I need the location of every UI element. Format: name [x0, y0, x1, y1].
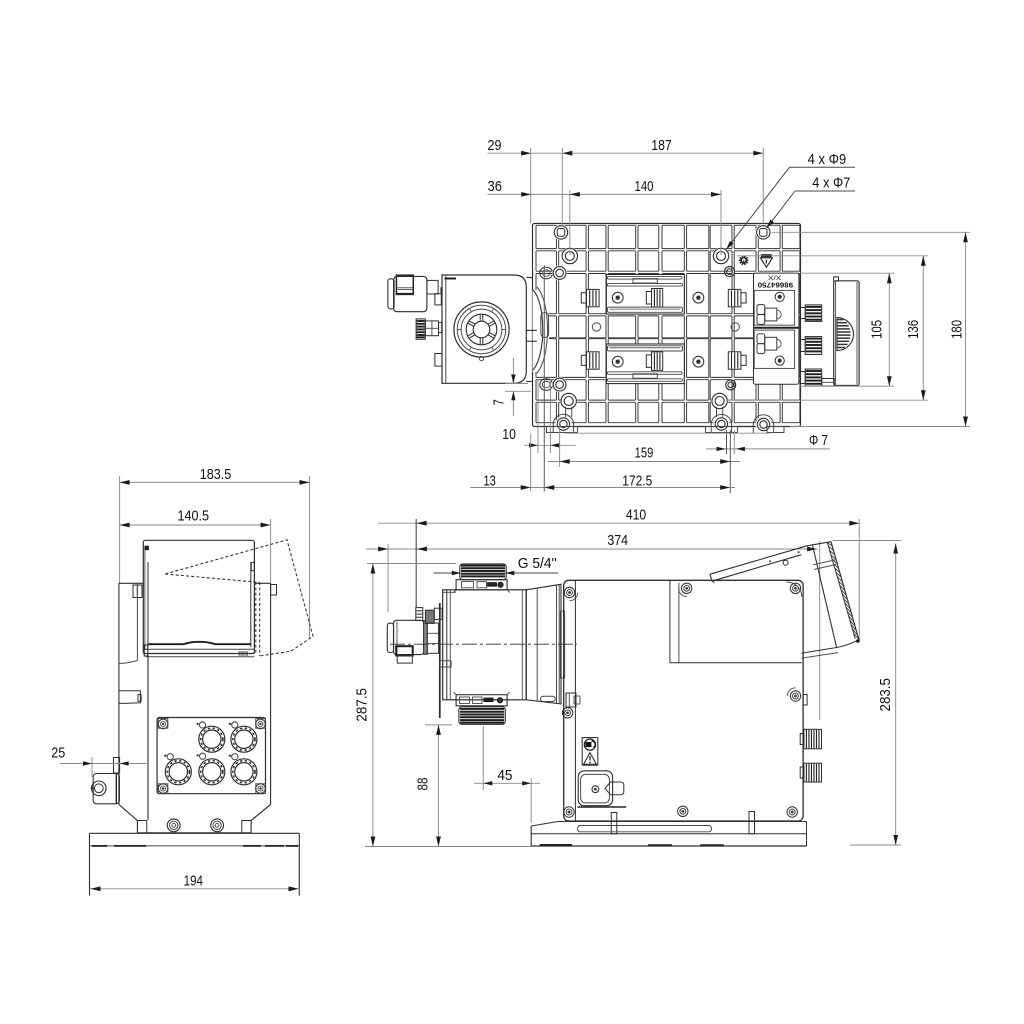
svg-text:374: 374 [607, 532, 628, 549]
svg-text:Φ 7: Φ 7 [809, 432, 828, 449]
svg-text:172.5: 172.5 [622, 472, 652, 489]
svg-text:13: 13 [483, 472, 496, 489]
svg-text:159: 159 [635, 445, 654, 462]
svg-text:183.5: 183.5 [200, 466, 232, 483]
svg-text:287.5: 287.5 [354, 688, 371, 722]
svg-text:25: 25 [51, 745, 65, 762]
svg-text:105: 105 [868, 320, 885, 339]
svg-text:X/X: X/X [767, 274, 781, 281]
svg-text:4 x Φ9: 4 x Φ9 [808, 151, 847, 168]
svg-text:45: 45 [497, 767, 512, 784]
svg-text:10: 10 [502, 426, 516, 443]
svg-text:G 5/4'': G 5/4'' [518, 555, 557, 572]
svg-text:4 x Φ7: 4 x Φ7 [812, 175, 850, 192]
svg-text:7: 7 [490, 399, 507, 405]
svg-text:140.5: 140.5 [178, 508, 210, 525]
svg-text:88: 88 [415, 778, 432, 791]
svg-text:283.5: 283.5 [877, 678, 894, 711]
svg-text:36: 36 [488, 178, 503, 195]
svg-text:194: 194 [184, 873, 203, 890]
svg-text:29: 29 [488, 137, 502, 154]
svg-text:140: 140 [635, 178, 654, 195]
svg-text:187: 187 [651, 137, 672, 154]
svg-text:410: 410 [626, 506, 646, 523]
svg-text:136: 136 [905, 320, 922, 339]
svg-text:180: 180 [948, 320, 965, 339]
svg-text:98664750: 98664750 [758, 281, 794, 288]
